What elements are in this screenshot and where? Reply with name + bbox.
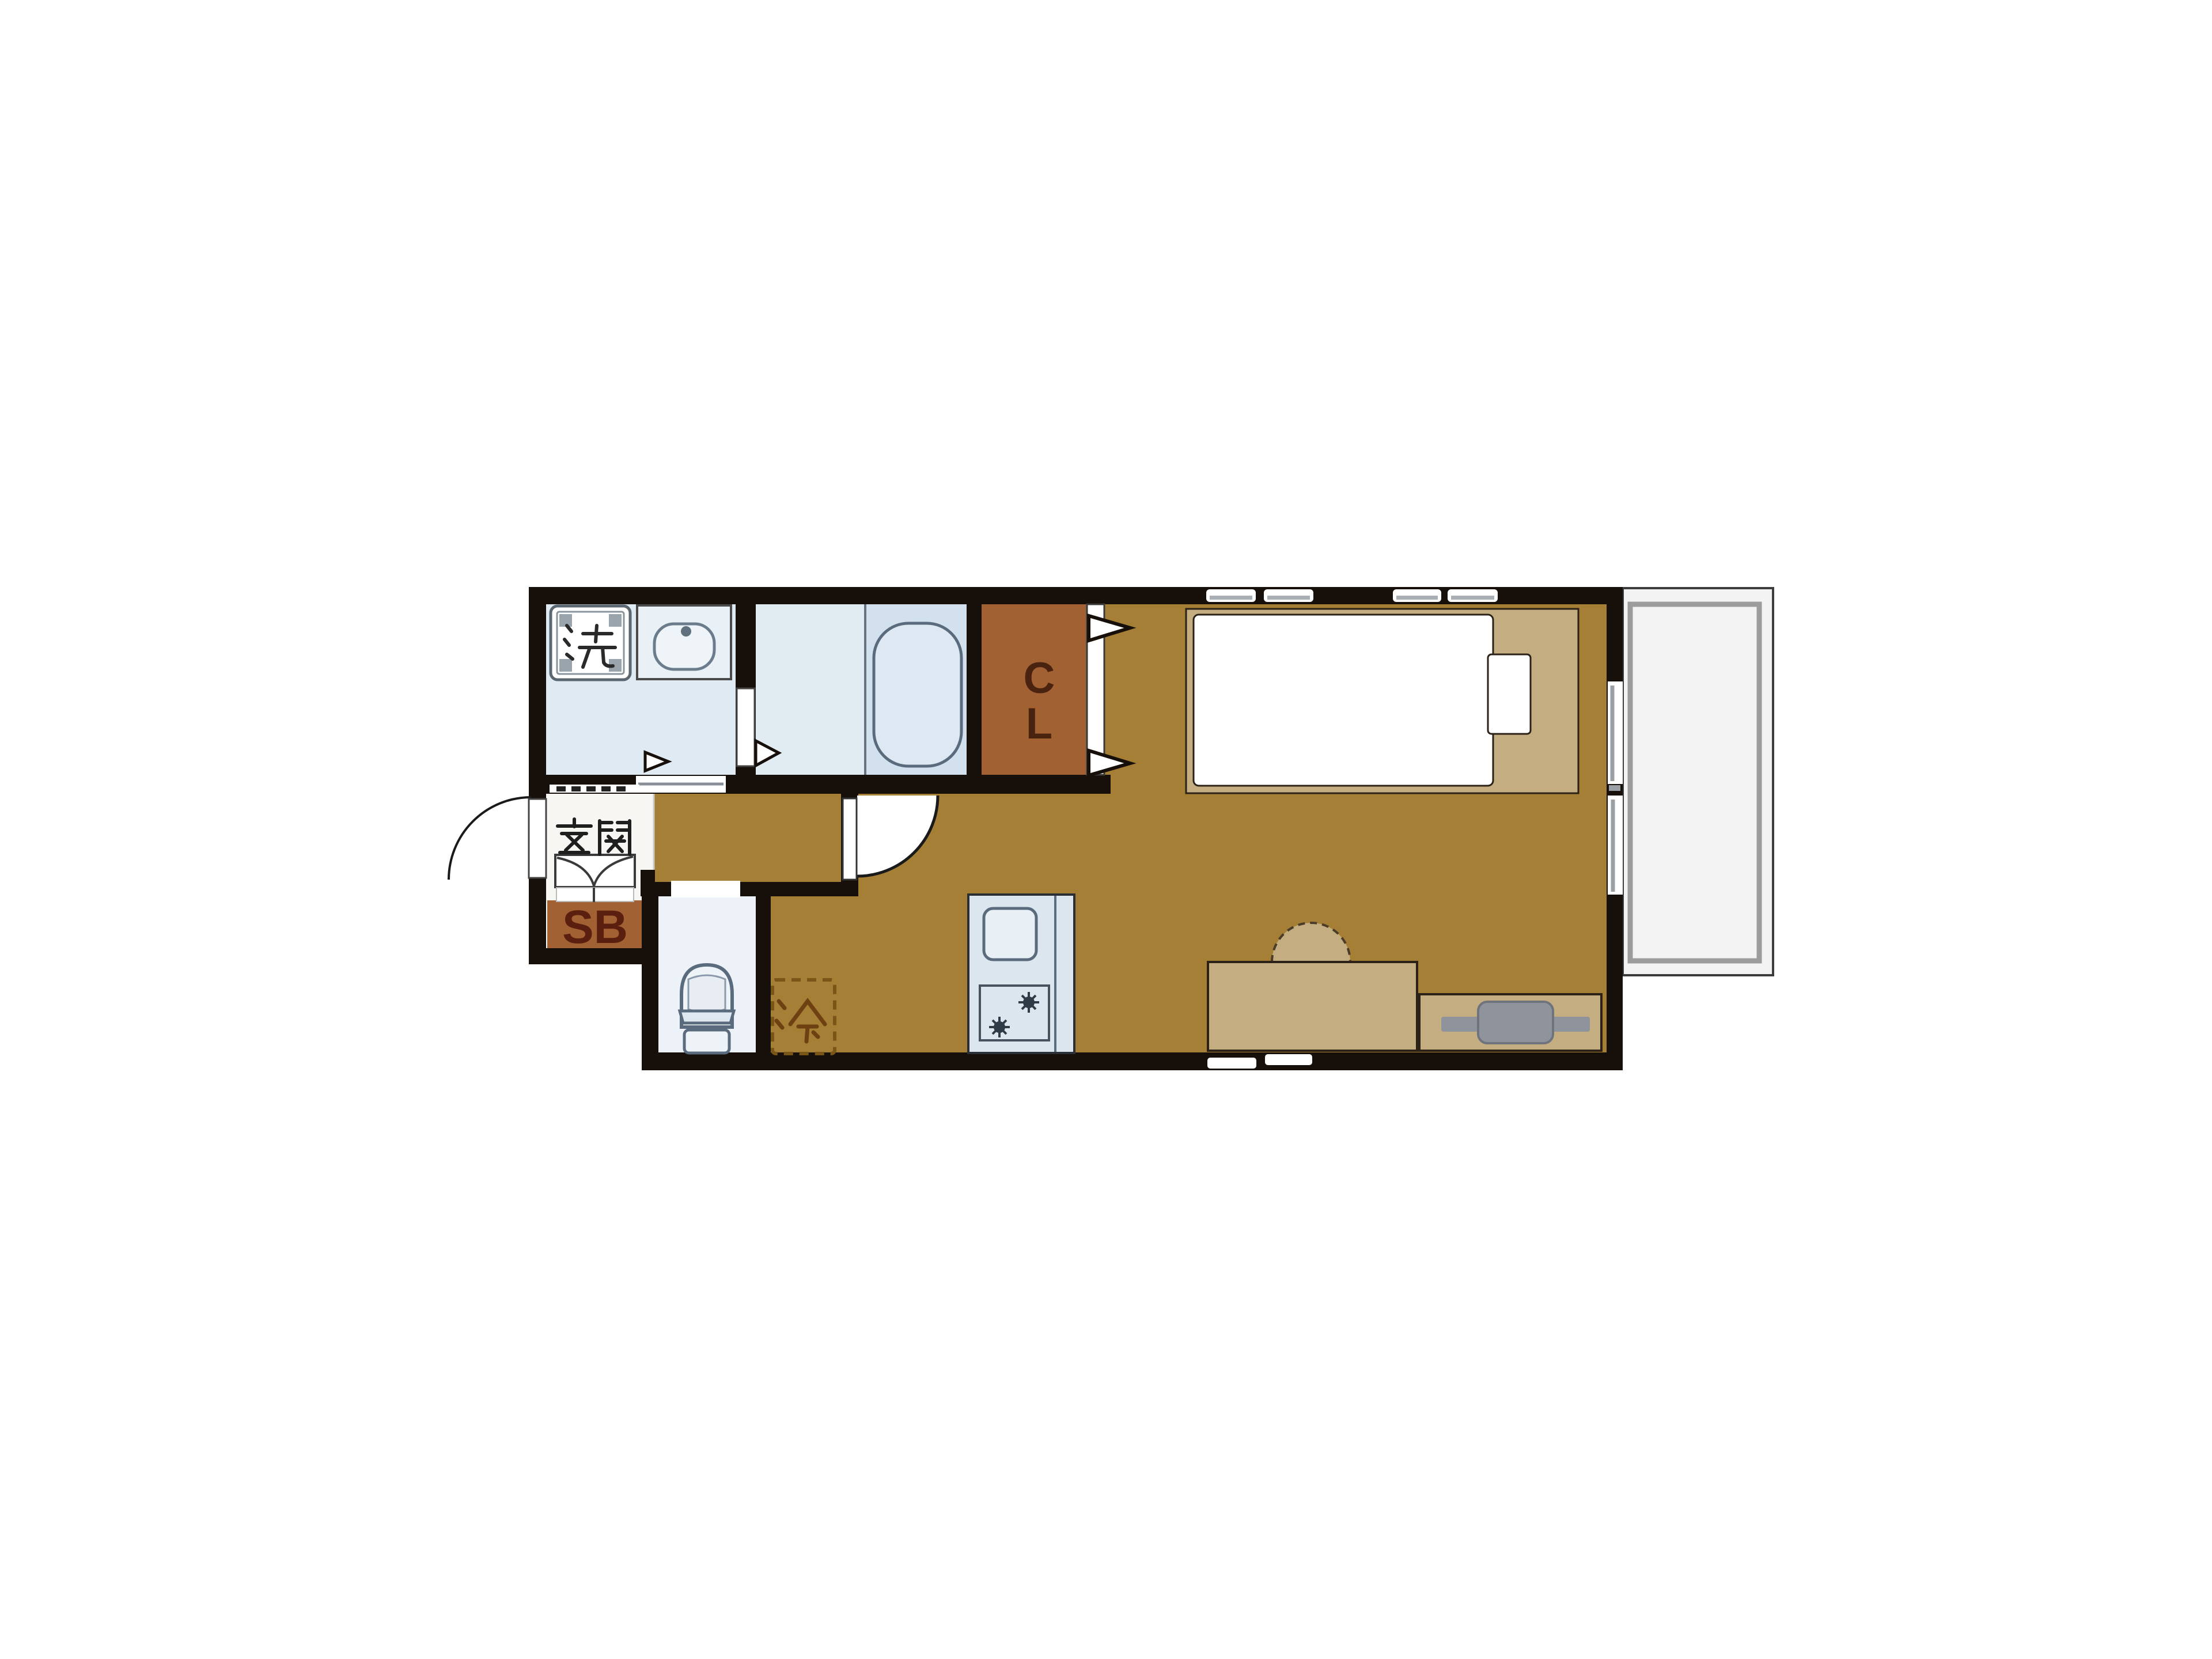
svg-text:C: C (1024, 654, 1055, 703)
svg-text:SB: SB (562, 901, 628, 953)
svg-text:L: L (1026, 699, 1052, 748)
